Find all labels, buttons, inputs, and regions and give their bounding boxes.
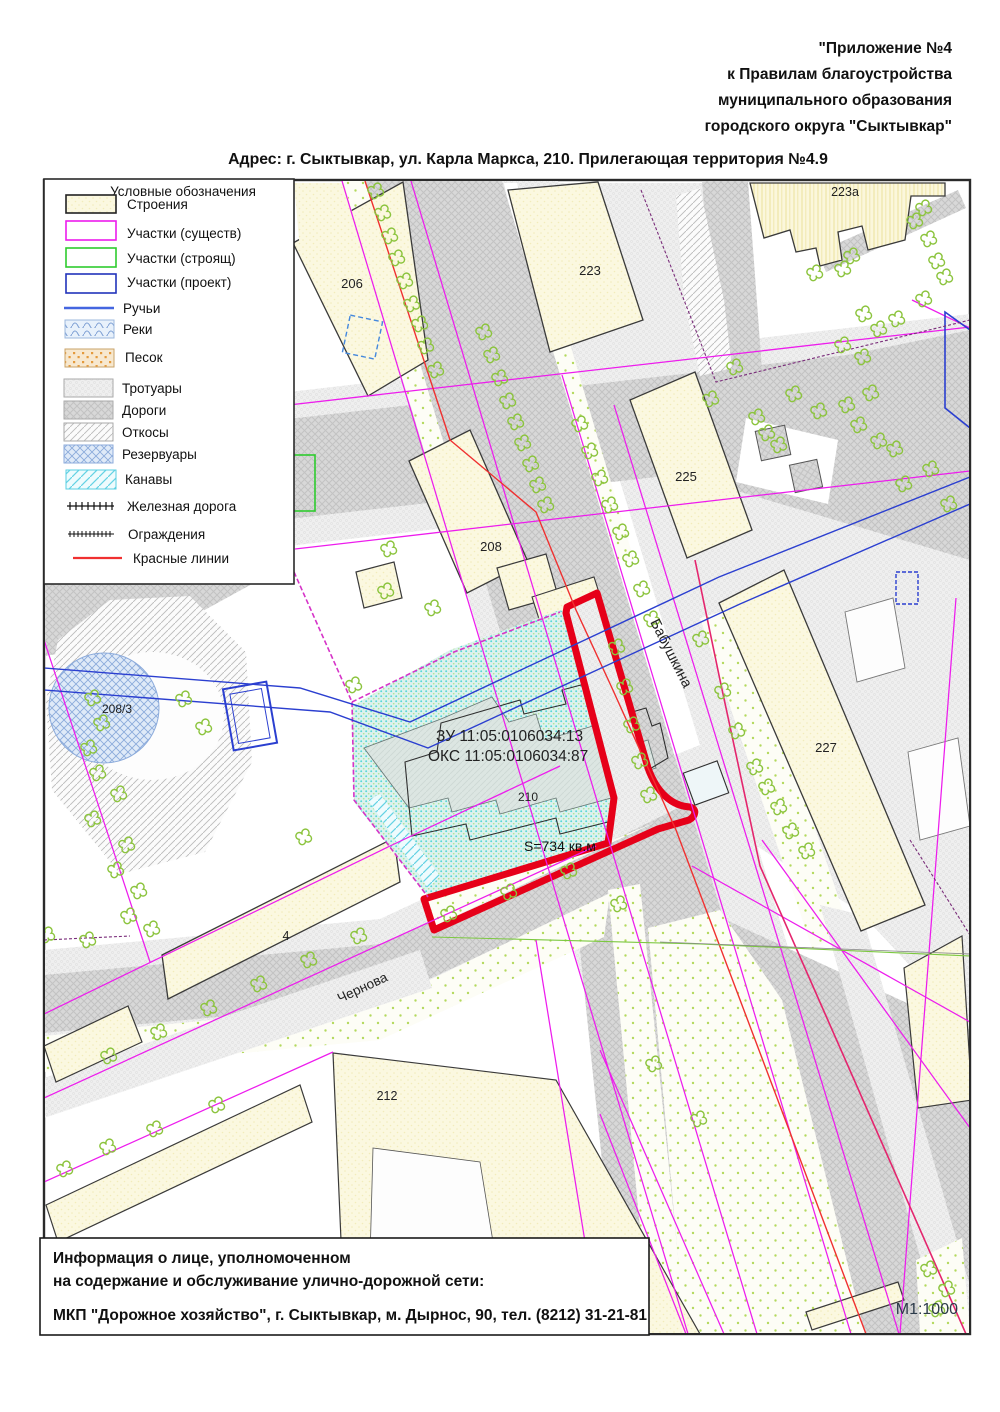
svg-text:Канавы: Канавы (125, 472, 172, 487)
svg-text:МКП "Дорожное хозяйство", г. С: МКП "Дорожное хозяйство", г. Сыктывкар, … (53, 1307, 647, 1324)
svg-text:"Приложение №4: "Приложение №4 (818, 40, 952, 57)
svg-text:212: 212 (377, 1089, 398, 1103)
svg-text:Участки (строящ): Участки (строящ) (127, 251, 236, 266)
svg-text:223а: 223а (831, 185, 859, 199)
svg-text:227: 227 (815, 740, 837, 755)
svg-text:Реки: Реки (123, 322, 152, 337)
svg-text:на содержание и обслуживание у: на содержание и обслуживание улично-доро… (53, 1273, 484, 1290)
svg-text:Дороги: Дороги (122, 403, 166, 418)
svg-text:Откосы: Откосы (122, 425, 169, 440)
svg-text:городского округа "Сыктывкар": городского округа "Сыктывкар" (705, 118, 952, 135)
svg-text:муниципального образования: муниципального образования (718, 92, 952, 109)
svg-text:Адрес: г. Сыктывкар, ул. Карла: Адрес: г. Сыктывкар, ул. Карла Маркса, 2… (228, 151, 828, 168)
svg-text:208: 208 (480, 539, 502, 554)
svg-text:223: 223 (579, 263, 601, 278)
svg-text:Информация о лице, уполномочен: Информация о лице, уполномоченном (53, 1250, 351, 1267)
svg-text:S=734 кв.м: S=734 кв.м (524, 838, 596, 854)
svg-text:Красные линии: Красные линии (133, 551, 229, 566)
svg-text:Ручьи: Ручьи (123, 301, 160, 316)
svg-text:206: 206 (341, 276, 363, 291)
svg-text:Ограждения: Ограждения (128, 527, 205, 542)
svg-text:Участки (существ): Участки (существ) (127, 226, 241, 241)
svg-text:Песок: Песок (125, 350, 163, 365)
svg-text:210: 210 (518, 790, 538, 804)
svg-text:М1:1000: М1:1000 (896, 1301, 958, 1318)
svg-text:208/3: 208/3 (102, 702, 132, 716)
svg-text:Строения: Строения (127, 197, 188, 212)
svg-text:Участки (проект): Участки (проект) (127, 275, 231, 290)
svg-text:4: 4 (283, 929, 290, 943)
svg-text:ОКС 11:05:0106034:87: ОКС 11:05:0106034:87 (428, 748, 588, 765)
svg-text:225: 225 (675, 469, 697, 484)
svg-text:Железная дорога: Железная дорога (127, 499, 237, 514)
svg-text:ЗУ 11:05:0106034:13: ЗУ 11:05:0106034:13 (436, 728, 583, 745)
svg-text:Резервуары: Резервуары (122, 447, 197, 462)
svg-text:к Правилам благоустройства: к Правилам благоустройства (727, 66, 952, 83)
svg-text:Тротуары: Тротуары (122, 381, 182, 396)
